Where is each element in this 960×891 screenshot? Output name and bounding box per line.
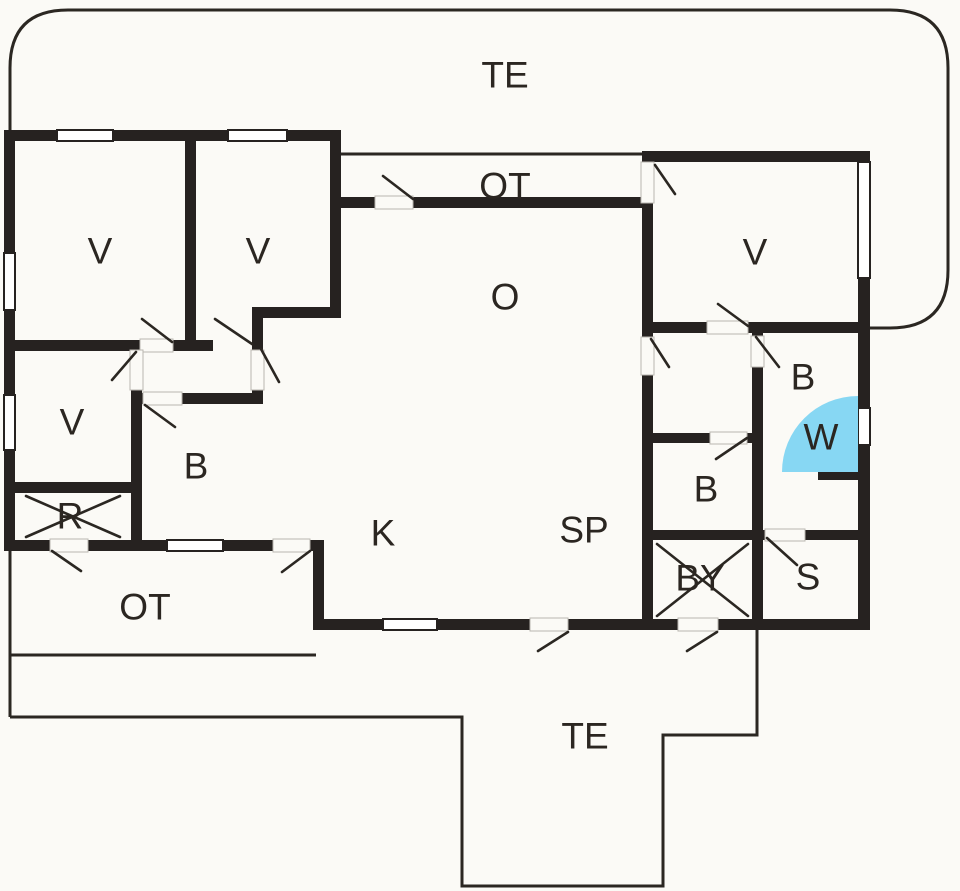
window bbox=[383, 619, 437, 630]
room-label-shower-wc: W bbox=[804, 417, 839, 458]
room-label-dining: SP bbox=[559, 510, 608, 551]
wall bbox=[252, 307, 263, 350]
wall bbox=[313, 540, 324, 630]
room-label-covered-porch: OT bbox=[119, 587, 170, 628]
room-label-room-by-crossed: BY bbox=[675, 558, 724, 599]
wall bbox=[173, 340, 213, 351]
wall bbox=[255, 307, 341, 318]
wall bbox=[252, 390, 263, 404]
wall bbox=[642, 151, 870, 162]
door-opening bbox=[375, 196, 413, 209]
door-opening bbox=[143, 392, 182, 405]
door-swing-line bbox=[767, 538, 797, 565]
door-opening bbox=[678, 618, 718, 631]
wall bbox=[648, 530, 763, 540]
window bbox=[858, 162, 870, 278]
wall bbox=[752, 333, 763, 619]
door-opening bbox=[765, 529, 805, 541]
wall bbox=[185, 141, 196, 351]
floor-plan-drawing: TEOTVVVOVBRBWBKSPBYSOTTE bbox=[0, 0, 960, 891]
door-opening bbox=[641, 162, 654, 203]
room-label-living-room: O bbox=[491, 277, 520, 318]
door-swing-line bbox=[52, 551, 81, 571]
door-opening bbox=[251, 350, 264, 390]
door-opening bbox=[273, 539, 310, 552]
wall bbox=[131, 390, 142, 551]
room-label-bath-left: B bbox=[184, 446, 209, 487]
room-label-sauna: S bbox=[796, 557, 821, 598]
room-label-bedroom-right: V bbox=[743, 232, 768, 273]
wall bbox=[4, 340, 140, 351]
room-label-bedroom-2: V bbox=[246, 231, 271, 272]
window bbox=[167, 540, 223, 551]
wall bbox=[642, 151, 653, 630]
wall bbox=[642, 322, 870, 333]
room-label-bath-center: B bbox=[694, 469, 719, 510]
window bbox=[858, 408, 870, 445]
room-label-bedroom-1: V bbox=[88, 231, 113, 272]
wall bbox=[4, 130, 341, 141]
room-label-kitchen: K bbox=[371, 513, 396, 554]
room-label-bath-right: B bbox=[791, 357, 816, 398]
floor-plan-page: TEOTVVVOVBRBWBKSPBYSOTTE bbox=[0, 0, 960, 891]
door-swing-line bbox=[538, 632, 568, 651]
door-opening bbox=[140, 339, 173, 352]
room-label-covered-terrace-top: OT bbox=[479, 166, 530, 207]
door-swing-line bbox=[282, 551, 310, 572]
window bbox=[228, 130, 287, 141]
room-label-terrace-bottom: TE bbox=[561, 716, 608, 757]
door-swing-line bbox=[687, 632, 717, 651]
room-label-room-r-crossed: R bbox=[57, 496, 84, 537]
room-label-terrace-top: TE bbox=[481, 55, 528, 96]
door-swing-line bbox=[655, 165, 675, 194]
window bbox=[4, 253, 15, 310]
wall bbox=[330, 130, 341, 313]
window bbox=[57, 130, 113, 141]
window bbox=[4, 395, 15, 450]
door-swing-line bbox=[145, 405, 175, 427]
door-opening bbox=[530, 618, 568, 631]
door-opening bbox=[50, 539, 88, 552]
room-label-bedroom-left: V bbox=[60, 402, 85, 443]
door-swing-line bbox=[215, 319, 252, 344]
wall bbox=[4, 482, 142, 493]
